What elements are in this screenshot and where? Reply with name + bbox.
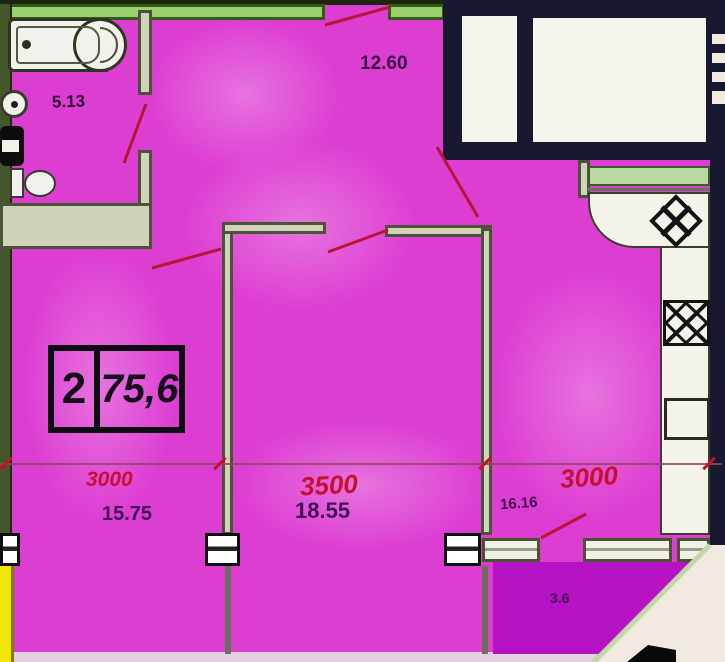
bathroom-area-label: 5.13 <box>52 91 86 112</box>
door-swing-balcony <box>541 514 586 538</box>
dimension-middle-label: 3500 <box>299 469 358 503</box>
dimension-right-label: 3000 <box>559 460 619 495</box>
plan-overlay <box>0 0 725 662</box>
unit-rooms-count: 2 <box>54 351 100 427</box>
floor-plan: 2 75,6 5.13 12.60 15.75 18.55 16.16 3.6 … <box>0 0 725 662</box>
door-swing-kitchen <box>437 147 478 217</box>
door-swing-room-left <box>152 249 221 268</box>
balcony-area-label: 3.6 <box>550 590 569 606</box>
hallway-area-label: 12.60 <box>360 53 408 75</box>
door-swing-bathroom <box>124 104 146 163</box>
room-left-area-label: 15.75 <box>102 503 152 526</box>
dimension-left-label: 3000 <box>86 468 133 492</box>
unit-info-box: 2 75,6 <box>48 345 185 433</box>
kitchen-area-label: 16.16 <box>499 494 538 514</box>
unit-total-area: 75,6 <box>100 351 179 427</box>
door-swing-entrance <box>325 7 390 25</box>
door-swing-room-middle <box>328 230 388 252</box>
